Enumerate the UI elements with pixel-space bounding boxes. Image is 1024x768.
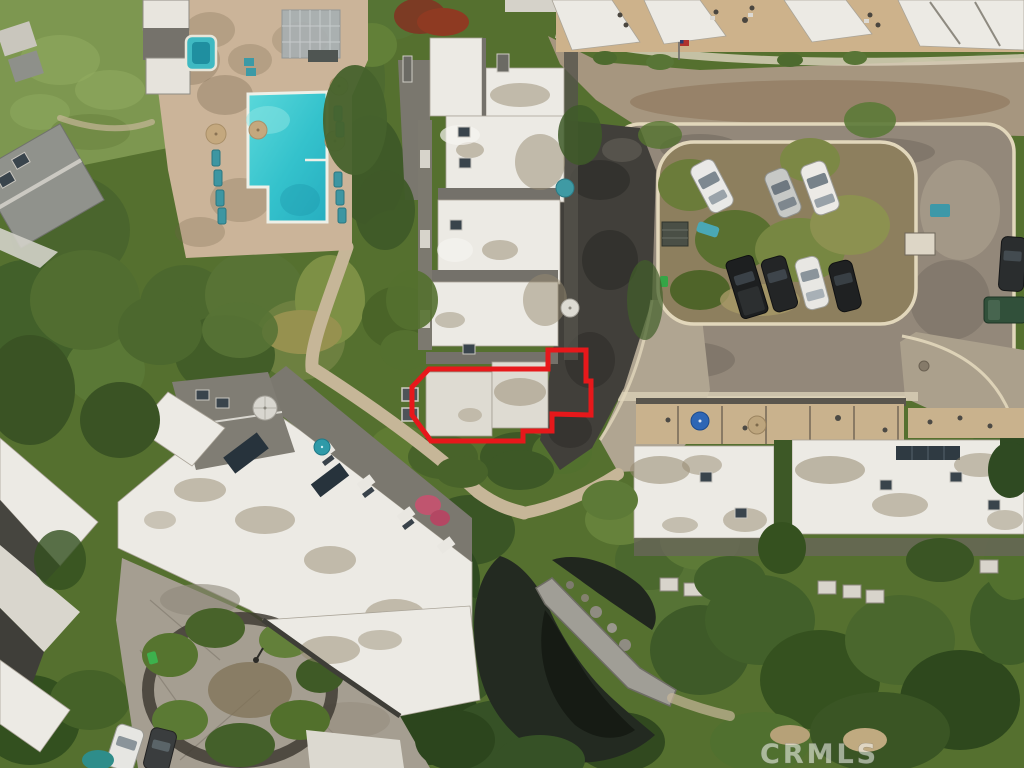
patio-strip: [636, 404, 904, 444]
roof-section: [430, 38, 482, 116]
patio-strip-right: [908, 408, 1024, 438]
skylight: [463, 344, 475, 354]
pergola: [282, 10, 340, 62]
chimney: [497, 54, 509, 72]
courtyard-gazebo-teal: [556, 179, 574, 197]
patio-umbrella-blue: [691, 412, 709, 430]
skylight: [950, 472, 962, 482]
car-dark-suv-right: [998, 236, 1024, 292]
skylight: [458, 127, 470, 137]
dumpster: [930, 204, 950, 217]
watermark: CRMLS: [760, 739, 879, 768]
skylight: [700, 472, 712, 482]
corner-shed: [905, 233, 935, 255]
island-storage-shed: [662, 222, 688, 246]
pool-umbrella: [249, 121, 267, 139]
clubhouse-roof: [143, 0, 189, 30]
highlighted-unit-roof: [426, 372, 492, 436]
skylight: [988, 500, 1000, 510]
skylight: [450, 220, 462, 230]
chimney: [403, 56, 412, 82]
courtyard-umbrella-white: [561, 299, 579, 317]
skylight: [880, 480, 892, 490]
teal-patio-umbrella: [314, 439, 330, 455]
skylight: [735, 508, 747, 518]
aerial-photo: CRMLS: [0, 0, 1024, 768]
pool-umbrella: [206, 124, 226, 144]
skylight: [459, 158, 471, 168]
white-patio-umbrella: [253, 396, 277, 420]
truck-green: [984, 297, 1024, 323]
manhole-cover: [919, 361, 929, 371]
patio-umbrella-tan: [748, 416, 766, 434]
